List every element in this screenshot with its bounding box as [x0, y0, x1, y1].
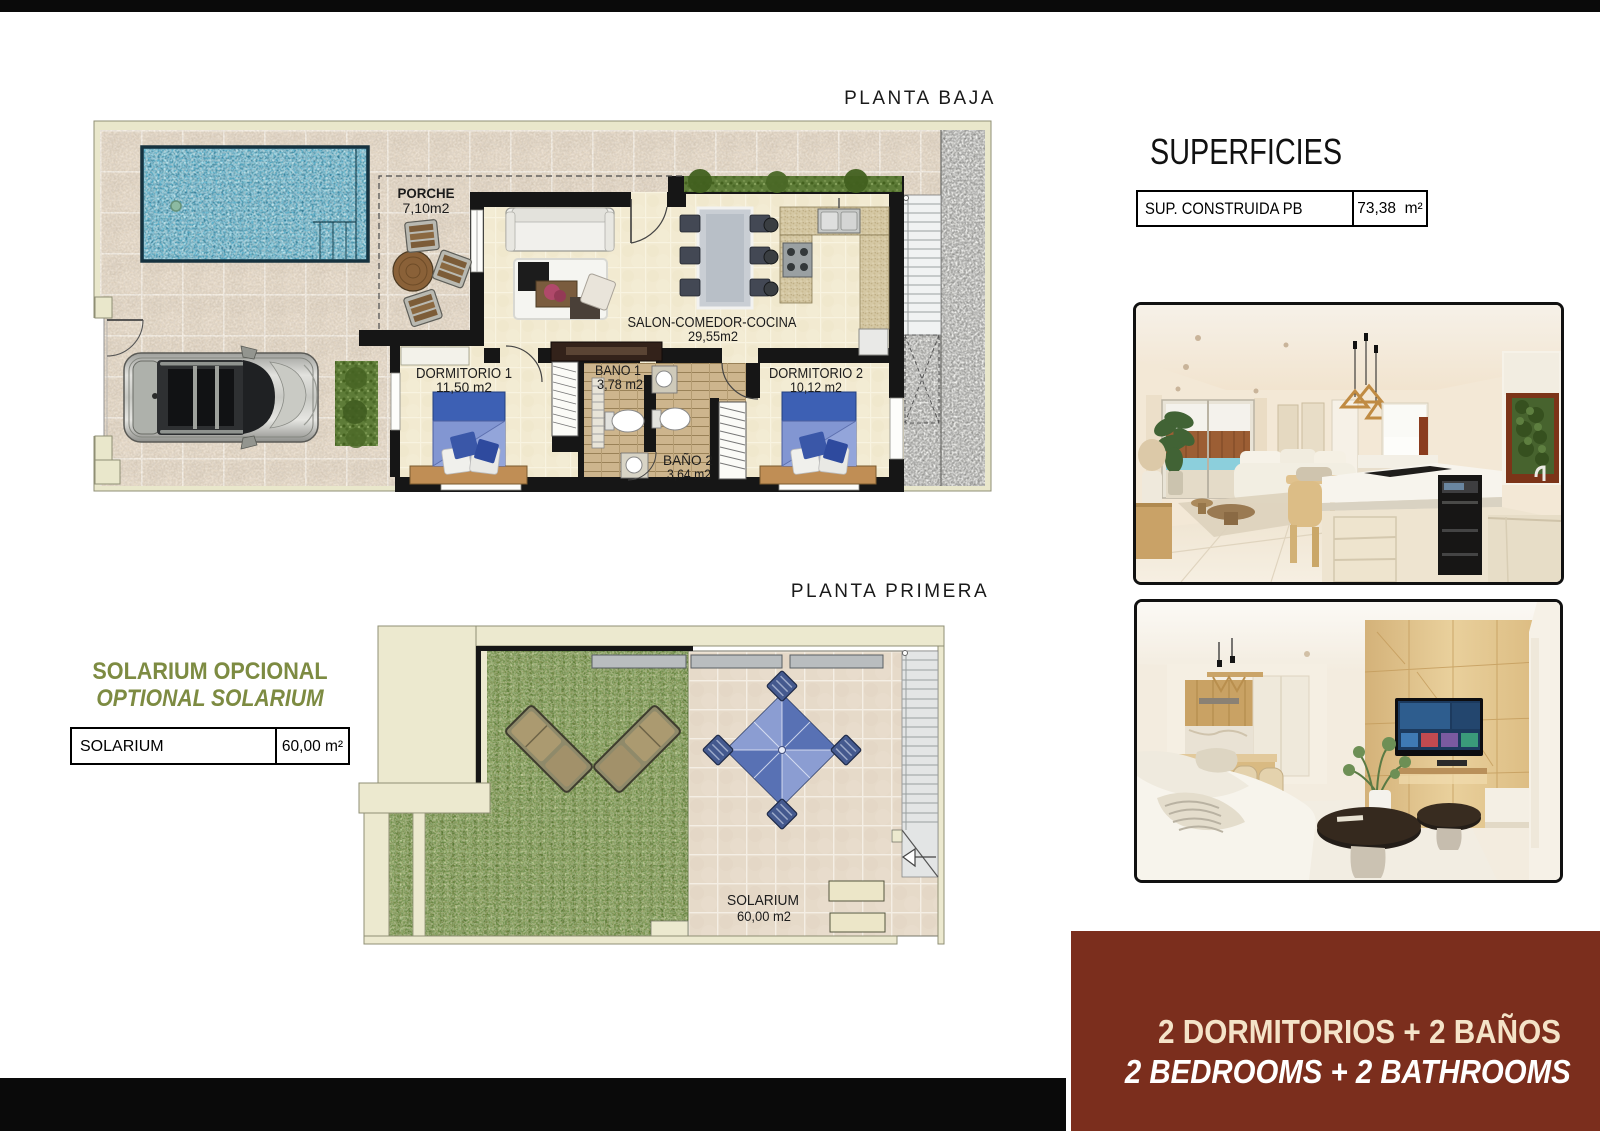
svg-text:3,78 m2: 3,78 m2 — [597, 377, 643, 392]
svg-text:11,50 m2: 11,50 m2 — [436, 379, 492, 395]
svg-text:29,55m2: 29,55m2 — [688, 328, 738, 344]
svg-text:BAÑO 2: BAÑO 2 — [663, 452, 713, 468]
svg-text:7,10m2: 7,10m2 — [403, 201, 450, 216]
svg-text:BANO 1: BANO 1 — [595, 362, 641, 378]
svg-text:3,64 m2: 3,64 m2 — [667, 467, 711, 482]
svg-text:60,00 m2: 60,00 m2 — [737, 908, 791, 924]
svg-text:SOLARIUM: SOLARIUM — [727, 892, 799, 909]
svg-text:10,12 m2: 10,12 m2 — [790, 379, 842, 395]
svg-text:PORCHE: PORCHE — [398, 185, 455, 201]
